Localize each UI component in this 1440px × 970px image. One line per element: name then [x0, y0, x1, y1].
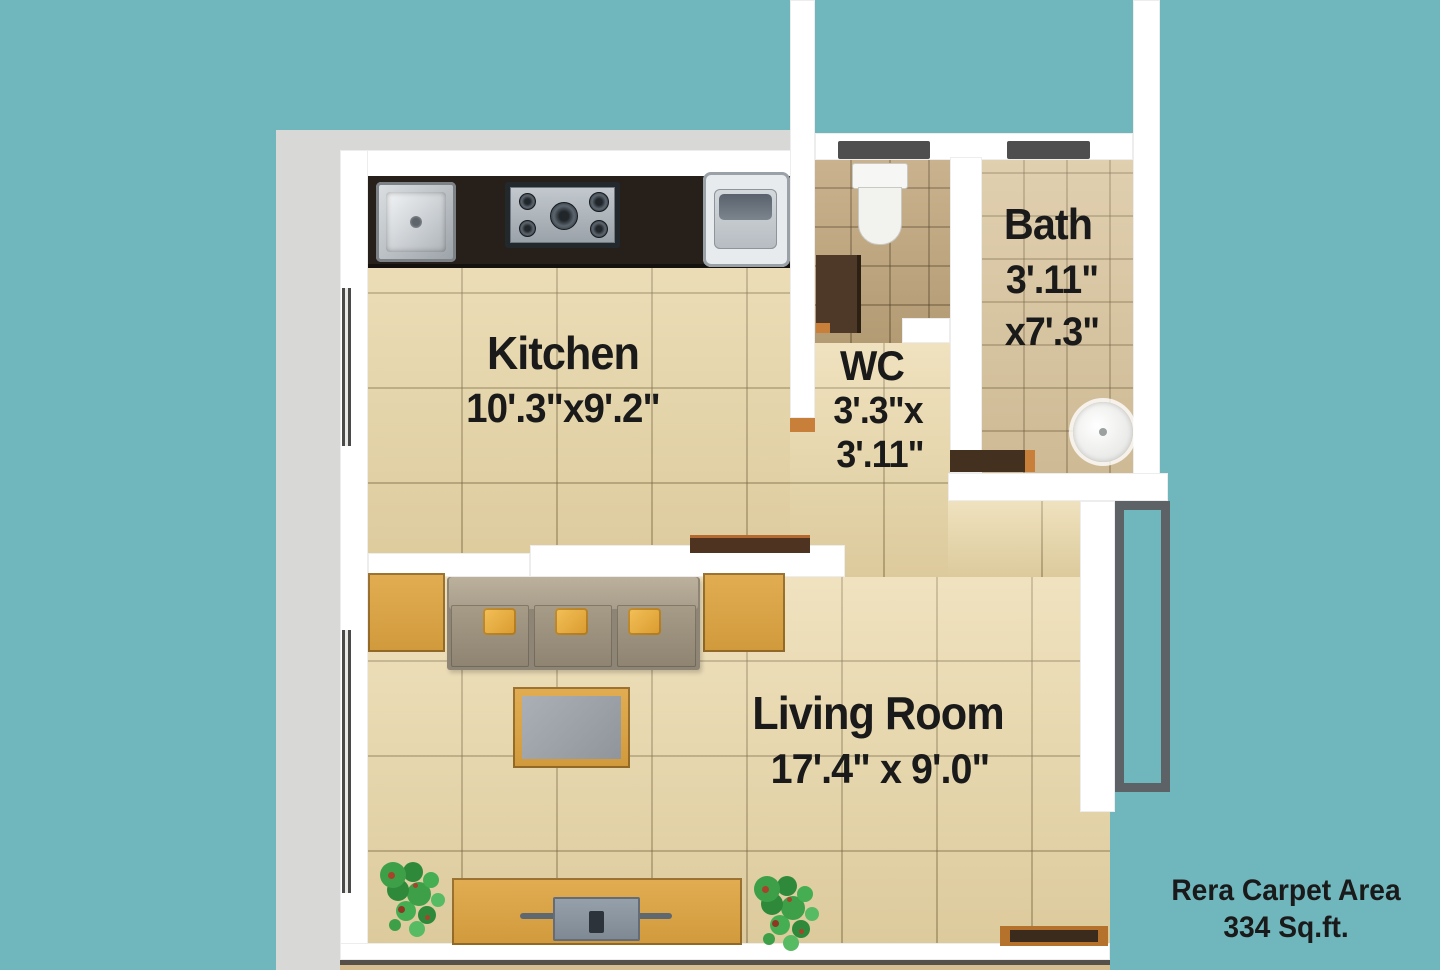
wc-dimensions-line1: 3'.3"x — [833, 392, 922, 430]
plant-left-icon — [374, 858, 454, 950]
living-room-dimensions: 17'.4" x 9'.0" — [771, 748, 990, 790]
tv-detail — [589, 911, 604, 933]
wc-dimensions-line2: 3'.11" — [836, 436, 923, 474]
stove-burner — [590, 220, 608, 238]
kitchen-window-icon — [342, 288, 351, 446]
sofa-pillow — [483, 608, 516, 635]
stove-burner — [589, 192, 609, 212]
bath-bench — [950, 450, 1035, 472]
gas-stove-icon — [505, 182, 620, 248]
kitchen-dimensions: 10'.3"x9'.2" — [466, 388, 660, 429]
coffee-table — [513, 687, 630, 768]
bath-dimensions-line1: 3'.11" — [1006, 260, 1098, 300]
exterior-margin-left — [276, 130, 342, 970]
plant-berries — [388, 872, 395, 879]
television-icon — [553, 897, 640, 941]
kitchen-door-jamb — [790, 418, 815, 432]
sofa-pillow — [555, 608, 588, 635]
wall-outer-bottom — [340, 943, 1110, 960]
corner-shelf-inner — [1010, 930, 1098, 942]
toilet-icon — [852, 163, 908, 189]
floor-plan-canvas: Kitchen 10'.3"x9'.2" WC 3'.3"x 3'.11" Ba… — [0, 0, 1440, 970]
wall-outer-right-top — [1133, 0, 1160, 500]
pass-through-shelf — [690, 535, 810, 553]
wc-shelf — [816, 255, 861, 333]
toilet-bowl — [858, 187, 902, 245]
duct-shaft — [1115, 501, 1170, 792]
wall-wc-bath-divider — [950, 157, 982, 473]
stove-burner — [519, 193, 536, 210]
washing-machine-icon — [703, 172, 790, 267]
side-table-left — [368, 573, 445, 652]
bath-dimensions-line2: x7'.3" — [1005, 312, 1099, 352]
coffee-table-top — [522, 696, 621, 759]
wall-bath-bottom — [948, 473, 1168, 501]
kitchen-label: Kitchen — [487, 330, 639, 376]
living-room-label: Living Room — [752, 690, 1003, 736]
side-table-right — [703, 573, 785, 652]
rera-carpet-area-line2: 334 Sq.ft. — [1223, 913, 1348, 943]
kitchen-sink-icon — [376, 182, 456, 262]
corner-shelf — [1000, 926, 1108, 946]
bath-vent-lintel — [1007, 141, 1090, 159]
stove-burner — [550, 202, 578, 230]
wc-shelf-edge — [816, 323, 830, 333]
plan-cutoff-floor — [340, 965, 1110, 970]
wall-wc-inner — [902, 318, 950, 343]
wall-living-right — [1080, 501, 1115, 812]
wash-basin-icon — [1073, 402, 1133, 462]
basin-drain — [1099, 428, 1107, 436]
plant-berries — [762, 886, 769, 893]
wc-label: WC — [840, 345, 904, 387]
sofa-pillow — [628, 608, 661, 635]
bath-label: Bath — [1004, 203, 1092, 247]
rera-carpet-area-line1: Rera Carpet Area — [1171, 876, 1400, 906]
washer-lid — [719, 194, 772, 220]
living-room-window-icon — [342, 630, 351, 893]
exterior-margin-top — [276, 130, 790, 152]
sofa — [447, 577, 700, 670]
sink-drain — [410, 216, 422, 228]
wc-vent-lintel — [838, 141, 930, 159]
stove-burner — [519, 220, 536, 237]
plant-right-icon — [748, 876, 828, 950]
wall-kitchen-right — [790, 0, 815, 418]
